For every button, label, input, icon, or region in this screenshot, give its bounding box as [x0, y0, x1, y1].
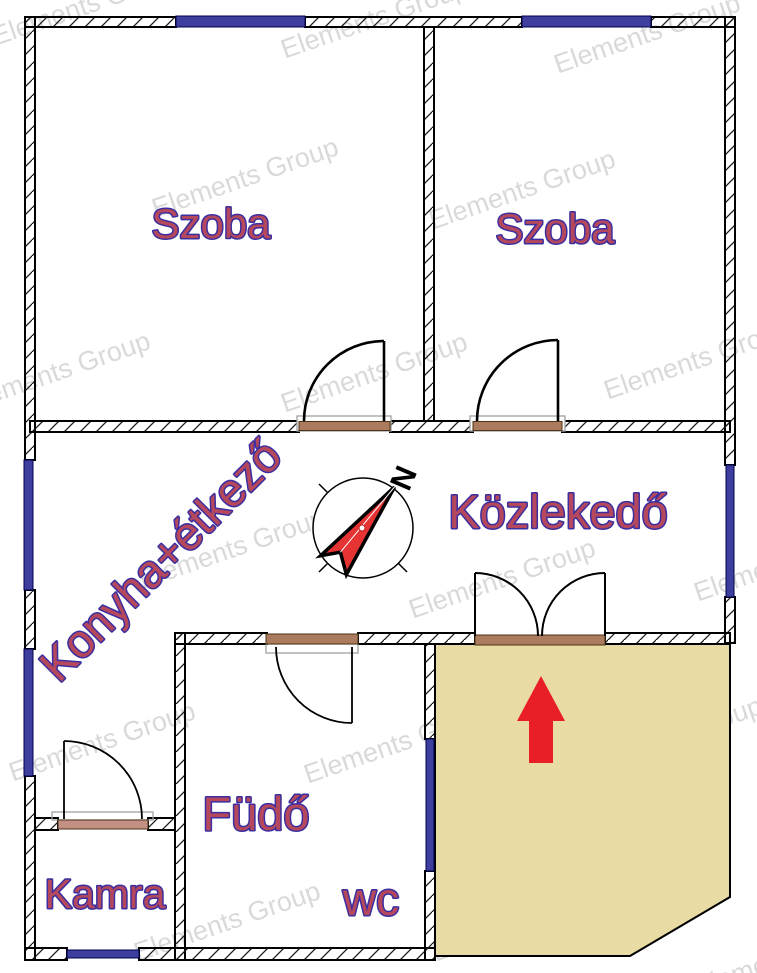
svg-text:Szoba: Szoba — [151, 200, 271, 247]
svg-text:Füdő: Füdő — [202, 787, 309, 840]
svg-text:Szoba: Szoba — [495, 205, 615, 252]
svg-text:wc: wc — [342, 873, 399, 925]
svg-text:Kamra: Kamra — [45, 871, 166, 917]
svg-text:Közlekedő: Közlekedő — [448, 485, 668, 538]
